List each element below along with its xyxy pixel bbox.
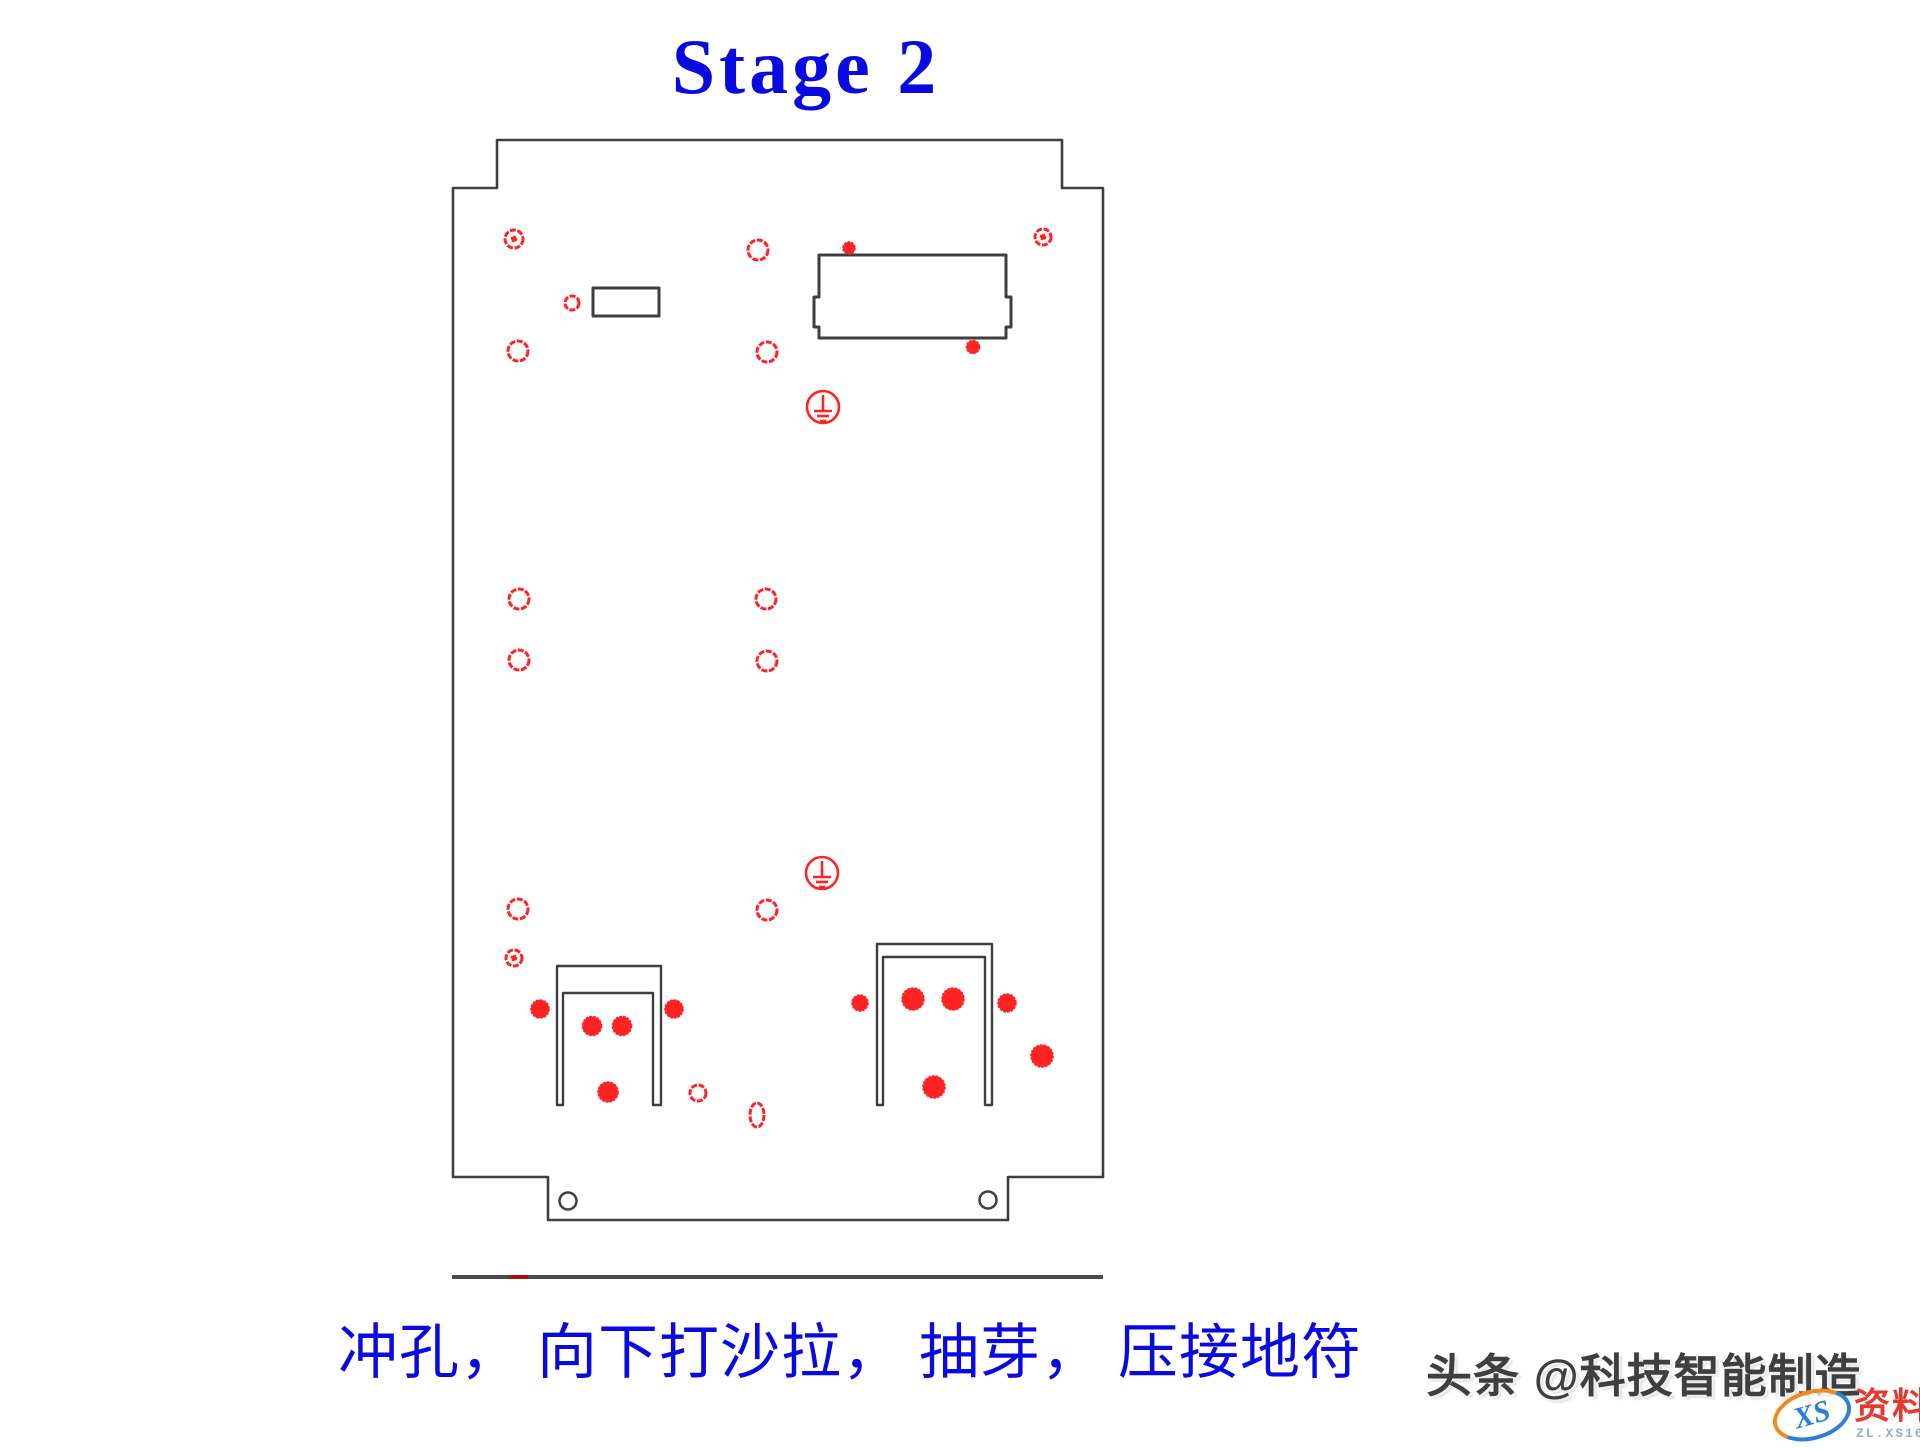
extruded-hole — [598, 1082, 618, 1102]
extruded-hole — [902, 988, 924, 1010]
punched-hole — [756, 589, 776, 609]
punched-hole — [690, 1085, 706, 1101]
corner-hole — [560, 1193, 577, 1210]
punched-hole — [748, 240, 768, 260]
extruded-hole — [613, 1017, 632, 1036]
extruded-hole — [923, 1076, 945, 1098]
hole-center-mark — [1040, 234, 1045, 239]
hole-center-mark — [511, 955, 516, 960]
punched-hole — [509, 589, 529, 609]
hole-center-mark — [511, 236, 516, 241]
baseline-red-mark — [509, 1275, 528, 1279]
extruded-hole — [531, 1000, 549, 1018]
process-caption: 冲孔， 向下打沙拉， 抽芽， 压接地符 — [338, 1304, 1362, 1391]
punched-hole — [508, 341, 528, 361]
punched-hole — [757, 900, 777, 920]
extruded-hole — [852, 995, 868, 1011]
logo-ellipse-icon: XS — [1767, 1380, 1858, 1450]
extruded-hole — [843, 242, 855, 254]
punched-hole — [757, 651, 777, 671]
punched-hole — [509, 650, 529, 670]
logo-site-url: ZL.XS1616.COM — [1856, 1426, 1920, 1441]
extruded-hole — [942, 988, 964, 1010]
logo-site-name: 资料网 — [1854, 1388, 1920, 1424]
flat-pattern-baseline — [452, 1275, 1103, 1279]
extruded-hole — [665, 1000, 683, 1018]
logo-xs-monogram: XS — [1790, 1396, 1834, 1435]
rect-cutout — [593, 288, 659, 316]
extruded-hole — [1031, 1045, 1053, 1067]
extruded-hole — [998, 994, 1016, 1012]
punched-hole — [508, 899, 528, 919]
extruded-hole — [583, 1017, 602, 1036]
sheet-metal-panel-drawing — [0, 0, 1920, 1440]
oval-hole — [750, 1103, 764, 1127]
rect-cutout — [814, 255, 1011, 338]
punched-hole — [565, 296, 579, 310]
corner-hole — [980, 1192, 997, 1209]
extruded-hole — [967, 341, 980, 354]
site-logo: XS 资料网 ZL.XS1616.COM — [1772, 1386, 1920, 1440]
punched-hole — [757, 342, 777, 362]
